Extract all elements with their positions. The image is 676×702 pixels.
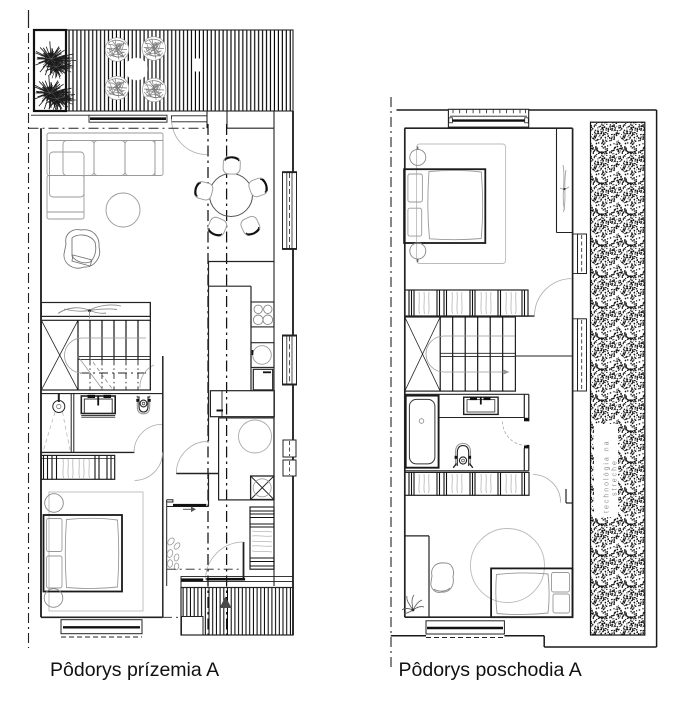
svg-text:technológia na: technológia na: [604, 439, 611, 513]
svg-text:Pôdorys poschodia A: Pôdorys poschodia A: [399, 659, 582, 681]
svg-text:Pôdorys prízemia A: Pôdorys prízemia A: [50, 659, 219, 681]
svg-text:streche: streche: [612, 459, 619, 496]
